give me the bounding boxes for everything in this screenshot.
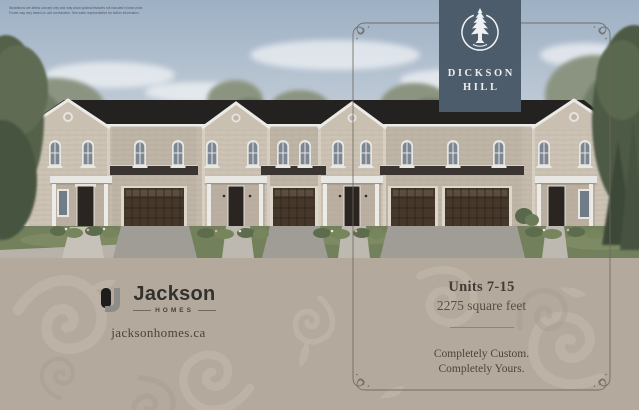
front-door-4 — [548, 186, 565, 227]
builder-brand-block: Jackson HOMES jacksonhomes.ca — [76, 284, 241, 341]
roof — [26, 100, 616, 126]
builder-website: jacksonhomes.ca — [76, 325, 241, 341]
front-door-3 — [344, 186, 360, 227]
front-door-1 — [77, 186, 94, 227]
garage-door-4 — [442, 186, 512, 227]
builder-brand-suffix: HOMES — [133, 307, 215, 314]
pine-tree-icon — [455, 6, 505, 60]
tagline-line-2: Completely Yours. — [391, 362, 572, 377]
divider-rule — [450, 327, 514, 328]
badge-title-line-1: DICKSON — [445, 67, 515, 81]
garage-door-3 — [388, 186, 438, 227]
dickson-hill-badge: DICKSON HILL — [439, 0, 521, 112]
disclaimer-line-2: Fronts may vary based on unit combinatio… — [9, 11, 639, 16]
listing-area: 2275 square feet — [391, 298, 572, 314]
listing-units: Units 7-15 — [391, 279, 572, 296]
building — [26, 100, 616, 227]
townhomes-rendering — [0, 0, 639, 258]
listing-info-block: Units 7-15 2275 square feet Completely C… — [391, 279, 572, 377]
builder-wordmark: Jackson HOMES — [133, 284, 215, 314]
brochure-page: Illustrations are artists concept only a… — [0, 0, 639, 410]
jackson-homes-logo: Jackson HOMES — [76, 284, 241, 314]
disclaimer-text: Illustrations are artists concept only a… — [9, 6, 639, 16]
townhomes-rendering-image — [0, 0, 639, 258]
garage-door-2 — [270, 186, 318, 227]
garage-doors — [121, 186, 512, 227]
jackson-monogram-icon — [101, 286, 127, 313]
badge-title-line-2: HILL — [460, 81, 499, 95]
builder-brand-name: Jackson — [133, 284, 215, 304]
front-door-2 — [228, 186, 244, 227]
garage-door-1 — [121, 186, 187, 227]
tagline-line-1: Completely Custom. — [391, 347, 572, 362]
